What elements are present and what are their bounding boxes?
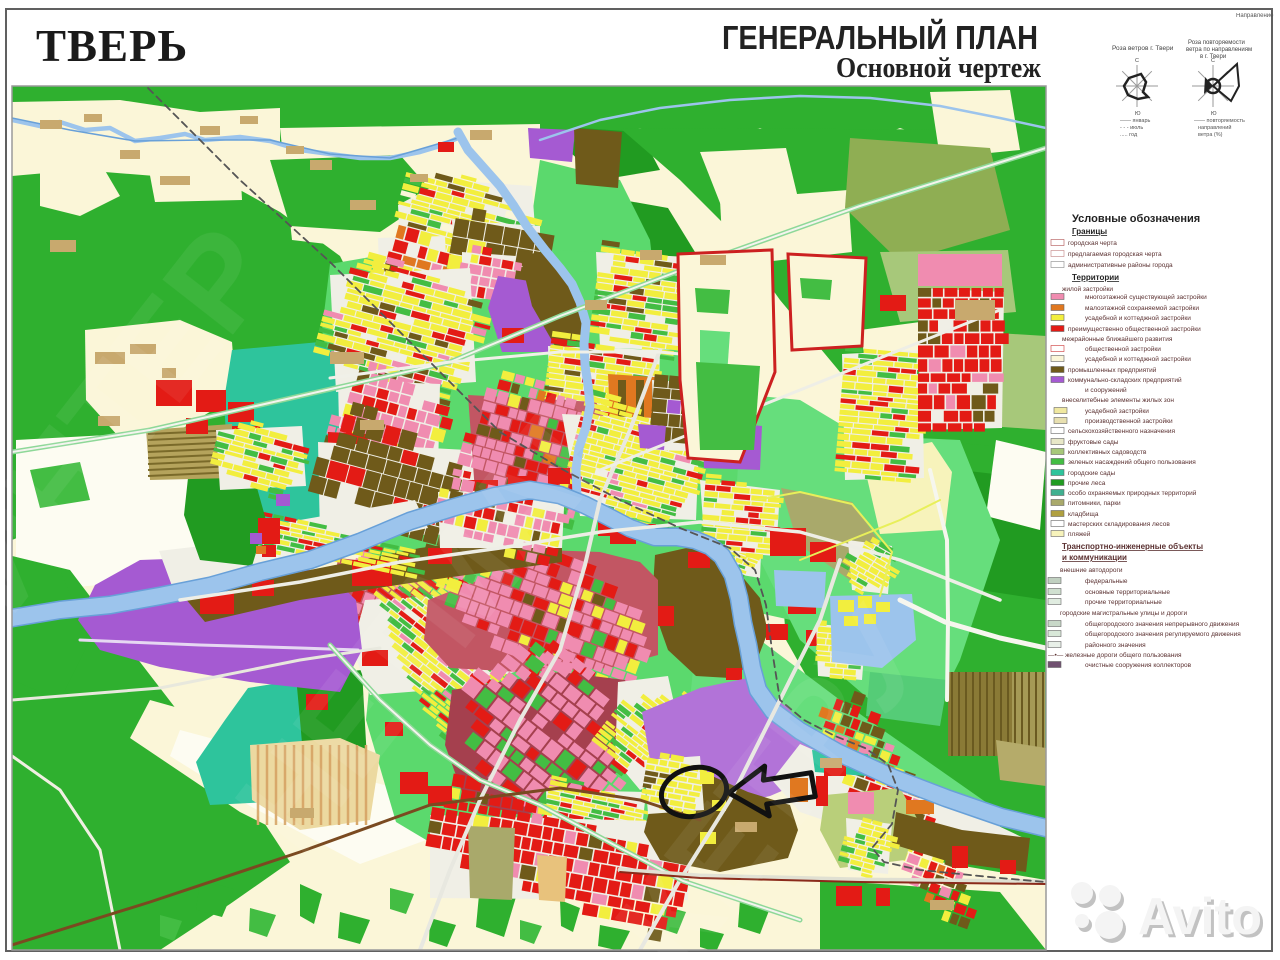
svg-text:С: С <box>1135 58 1139 64</box>
svg-text:внеселитебные элементы жилых з: внеселитебные элементы жилых зон <box>1062 396 1174 404</box>
svg-text:ТВЕРЬ: ТВЕРЬ <box>36 21 188 71</box>
svg-text:- - - июль: - - - июль <box>1120 125 1143 131</box>
svg-text:городские магистральные улицы: городские магистральные улицы и дороги <box>1060 610 1187 617</box>
svg-text:Ю: Ю <box>1211 111 1217 117</box>
svg-text:направлений: направлений <box>1198 124 1231 131</box>
svg-text:коллективных садоводств: коллективных садоводств <box>1068 449 1147 456</box>
svg-text:Роза ветров г. Твери: Роза ветров г. Твери <box>1112 45 1174 52</box>
svg-text:ветра (%): ветра (%) <box>1198 132 1223 138</box>
svg-text:ГЕНЕРАЛЬНЫЙ ПЛАН: ГЕНЕРАЛЬНЫЙ ПЛАН <box>722 18 1038 56</box>
svg-text:межрайонные ближайшего разви: межрайонные ближайшего развития <box>1062 335 1173 343</box>
svg-text:городская черта: городская черта <box>1068 240 1117 247</box>
svg-text:мастерских складирования лесов: мастерских складирования лесов <box>1068 521 1170 528</box>
svg-text:и коммуникации: и коммуникации <box>1062 553 1127 562</box>
svg-text:усадебной застройки: усадебной застройки <box>1085 407 1149 415</box>
svg-text:федеральные: федеральные <box>1085 578 1128 585</box>
svg-text:питомники, парки: питомники, парки <box>1068 500 1121 507</box>
svg-text:особо охраняемых природных тер: особо охраняемых природных территорий <box>1068 489 1197 497</box>
svg-text:кладбища: кладбища <box>1068 510 1099 518</box>
svg-text:предлагаемая городская черта: предлагаемая городская черта <box>1068 251 1162 258</box>
svg-text:усадебной и коттеджной застрой: усадебной и коттеджной застройки <box>1085 355 1191 363</box>
svg-text:многоэтажной существующей за: многоэтажной существующей застройки <box>1085 293 1207 301</box>
svg-text:усадебной и коттеджной застрой: усадебной и коттеджной застройки <box>1085 314 1191 322</box>
svg-text:основные территориальные: основные территориальные <box>1085 589 1170 596</box>
svg-text:сельскохозяйственного назначен: сельскохозяйственного назначения <box>1068 427 1175 435</box>
svg-text:производственной застройки: производственной застройки <box>1085 417 1173 425</box>
svg-text:Основной чертеж: Основной чертеж <box>836 53 1042 84</box>
svg-text:—•— железные дороги общего по: —•— железные дороги общего пользования <box>1048 651 1182 659</box>
svg-text:..... год: ..... год <box>1120 132 1138 138</box>
svg-text:общегородского значения непрер: общегородского значения непрерывного дви… <box>1085 620 1240 628</box>
svg-text:и сооружений: и сооружений <box>1085 386 1127 394</box>
svg-text:малоэтажной сохраняемой заст: малоэтажной сохраняемой застройки <box>1085 304 1199 312</box>
svg-text:общественной застройки: общественной застройки <box>1085 345 1161 353</box>
svg-text:Ю: Ю <box>1135 111 1141 117</box>
svg-text:преимущественно общественной з: преимущественно общественной застройки <box>1068 325 1201 333</box>
svg-text:прочие леса: прочие леса <box>1068 480 1106 487</box>
svg-text:коммунально-складских предприя: коммунально-складских предприятий <box>1068 376 1182 384</box>
svg-text:в г. Твери: в г. Твери <box>1200 54 1226 60</box>
svg-text:Avito: Avito <box>1138 888 1262 946</box>
svg-text:ветра по направлениям: ветра по направлениям <box>1186 47 1252 53</box>
svg-text:общегородского значения регули: общегородского значения регулируемого дв… <box>1085 630 1241 638</box>
svg-text:—— повторяемость: —— повторяемость <box>1194 118 1245 124</box>
svg-text:Границы: Границы <box>1072 227 1107 236</box>
svg-text:пляжей: пляжей <box>1068 530 1091 538</box>
svg-text:районного значения: районного значения <box>1085 641 1146 649</box>
svg-text:Условные обозначения: Условные обозначения <box>1072 213 1200 225</box>
svg-text:городские сады: городские сады <box>1068 470 1116 477</box>
svg-text:Территории: Территории <box>1072 273 1119 282</box>
svg-text:Направление: Направление <box>1236 13 1274 19</box>
svg-text:Роза повторяемости: Роза повторяемости <box>1188 40 1245 46</box>
svg-text:административные районы города: административные районы города <box>1068 261 1173 269</box>
svg-text:—— январь: —— январь <box>1120 118 1151 124</box>
svg-text:внешние автодороги: внешние автодороги <box>1060 567 1123 574</box>
svg-text:прочие территориальные: прочие территориальные <box>1085 599 1162 606</box>
svg-text:жилой застройки: жилой застройки <box>1062 285 1113 293</box>
svg-text:очистные сооружения коллекторо: очистные сооружения коллекторов <box>1085 662 1192 669</box>
svg-text:промышленных предприятий: промышленных предприятий <box>1068 366 1157 374</box>
svg-text:фруктовые сады: фруктовые сады <box>1068 439 1119 446</box>
svg-text:Транспортно-инженерные объекты: Транспортно-инженерные объекты <box>1062 542 1203 551</box>
svg-text:зеленых насаждений общего поль: зеленых насаждений общего пользования <box>1068 458 1196 466</box>
